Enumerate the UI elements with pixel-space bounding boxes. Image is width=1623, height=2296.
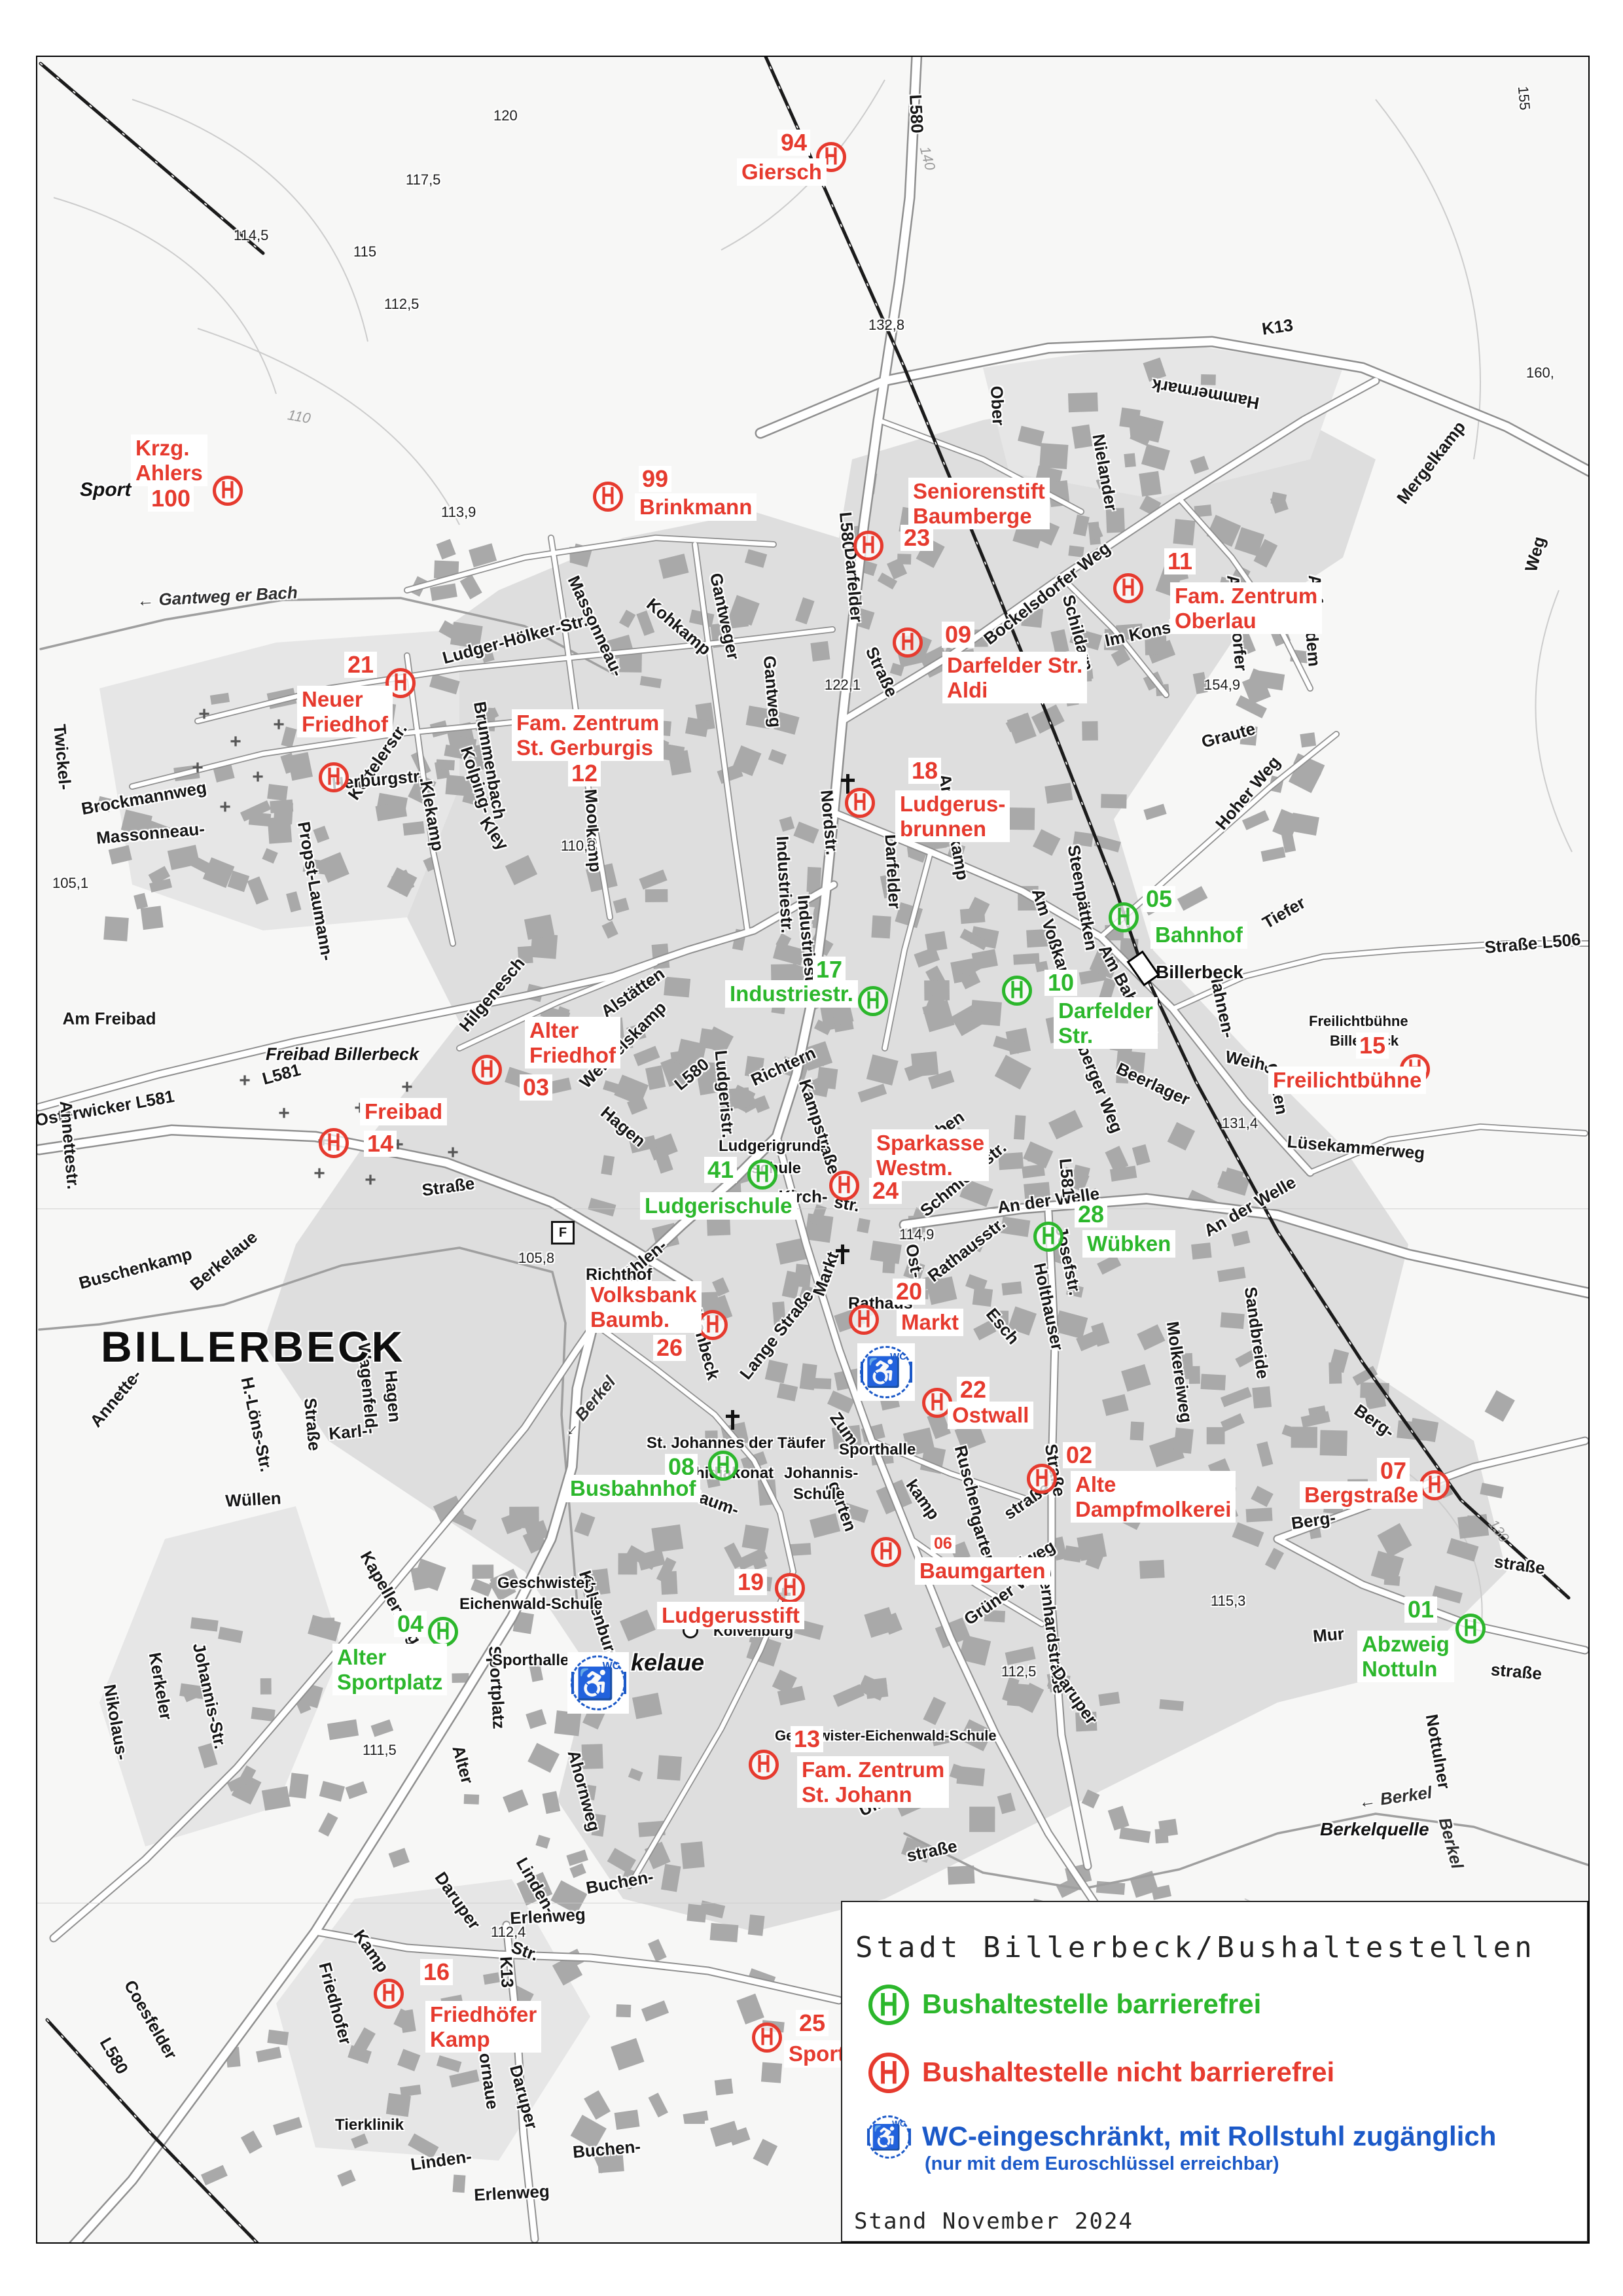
cemetery-cross-icon: + <box>273 714 285 736</box>
bus-stop-h-glyph: H <box>760 2025 774 2050</box>
wc-text: WC <box>603 1661 620 1672</box>
bus-stop-h-glyph: H <box>931 1390 944 1415</box>
bus-stop-label-06: Baumgarten <box>915 1557 1050 1585</box>
bus-stop-number-18: 18 <box>908 758 941 784</box>
bus-stop-marker-12: H <box>319 762 349 792</box>
cemetery-cross-icon: + <box>252 766 264 788</box>
cemetery-cross-icon: + <box>447 1142 459 1164</box>
wc-icon: ♿WC <box>567 1652 629 1714</box>
bus-stop-label-14: Freibad <box>360 1098 447 1125</box>
bus-stop-h-glyph: H <box>756 1162 770 1187</box>
legend-item-label: Bushaltestelle nicht barrierefrei <box>922 2057 1334 2088</box>
legend-title: Stadt Billerbeck/Bushaltestellen <box>855 1931 1536 1964</box>
bus-stop-label-100: Krzg. Ahlers <box>131 434 207 486</box>
elevation-label: 105,1 <box>52 875 88 892</box>
bus-stop-h-glyph: H <box>480 1057 494 1082</box>
legend-bus-stop-accessible-icon: H <box>868 1985 909 2025</box>
bus-stop-number-14: 14 <box>364 1131 397 1157</box>
elevation-label: 132,8 <box>868 317 904 334</box>
bus-stop-marker-100: H <box>213 476 243 506</box>
bus-stop-number-20: 20 <box>893 1279 925 1305</box>
place-label: Geschwister- <box>497 1574 596 1593</box>
bus-stop-number-41: 41 <box>704 1157 737 1183</box>
bus-stop-h-glyph: H <box>1042 1224 1056 1249</box>
bus-stop-marker-11: H <box>1113 573 1143 603</box>
cemetery-cross-icon: + <box>198 703 210 726</box>
place-label: Freilichtbühne <box>1309 1013 1408 1030</box>
place-label: Johannis- <box>784 1464 858 1483</box>
wc-bar <box>908 2128 911 2146</box>
bus-stop-h-glyph: H <box>437 1619 450 1644</box>
street-label: dem <box>1301 631 1325 667</box>
bus-stop-h-glyph: H <box>394 671 408 696</box>
wc-text: WC <box>892 2119 906 2128</box>
bus-stop-h-glyph: H <box>880 1540 893 1564</box>
bus-stop-marker-17: H <box>858 986 888 1016</box>
scan-artifact-line <box>37 1209 1588 1209</box>
place-label: St. Johannes der Täufer <box>647 1434 825 1453</box>
cemetery-cross-icon: + <box>219 796 231 819</box>
elevation-label: 120 <box>493 107 518 124</box>
bus-stop-number-94: 94 <box>777 130 810 156</box>
bus-stop-h-glyph: H <box>706 1313 720 1337</box>
wc-bar <box>624 1672 626 1694</box>
street-label: Wüllen <box>225 1488 282 1511</box>
legend-item-label: Bushaltestelle barrierefrei <box>922 1988 1261 2020</box>
bus-stop-label-13: Fam. Zentrum St. Johann <box>797 1756 949 1808</box>
wc-bar <box>867 2128 870 2146</box>
wc-text: WC <box>890 1351 906 1362</box>
bus-stop-marker-26: H <box>698 1310 728 1340</box>
elevation-label: 131,4 <box>1222 1115 1258 1132</box>
church-cross-icon <box>724 1410 741 1430</box>
wheelchair-icon: ♿ <box>865 1358 901 1387</box>
bus-stop-number-11: 11 <box>1164 548 1196 574</box>
place-label: Eichenwald-Schule <box>459 1595 603 1614</box>
page: { "city_label": "BILLERBECK", "colors": … <box>0 0 1623 2296</box>
bus-stop-marker-23: H <box>853 531 883 561</box>
bus-stop-label-03: Alter Friedhof <box>525 1017 620 1069</box>
bus-stop-h-glyph: H <box>783 1576 797 1600</box>
legend-item-accessible: H Bushaltestelle barrierefrei <box>842 1979 1587 2038</box>
bus-stop-number-100: 100 <box>148 486 194 512</box>
elevation-label: 111,5 <box>363 1742 397 1759</box>
bus-stop-marker-19: H <box>775 1573 805 1603</box>
bus-stop-number-15: 15 <box>1356 1033 1389 1059</box>
church-cross-icon <box>834 1245 851 1264</box>
bus-stop-marker-16: H <box>374 1979 404 2009</box>
bus-stop-label-17: Industriestr. <box>725 980 858 1008</box>
street-label: Ober <box>986 385 1008 426</box>
bus-stop-label-11: Fam. Zentrum Oberlau <box>1170 582 1322 634</box>
bus-stop-number-03: 03 <box>520 1074 552 1101</box>
bus-stop-label-26: Volksbank Baumb. <box>586 1281 702 1333</box>
bus-stop-number-25: 25 <box>796 2010 829 2036</box>
bus-stop-label-08: Busbahnhof <box>565 1475 700 1502</box>
parking-icon: F <box>551 1221 575 1245</box>
bus-stop-h-glyph: H <box>221 478 235 503</box>
bus-stop-number-09: 09 <box>942 622 974 648</box>
bus-stop-marker-06: H <box>871 1537 901 1567</box>
bus-stop-h-glyph: H <box>1010 978 1024 1003</box>
bus-stop-h-glyph: H <box>601 484 615 509</box>
elevation-label: 114,5 <box>234 227 268 244</box>
bus-stop-h-glyph: H <box>853 790 867 815</box>
bus-stop-marker-09: H <box>893 627 923 658</box>
bus-stop-label-18: Ludgerus- brunnen <box>895 790 1010 842</box>
place-label: Sporthalle <box>839 1441 916 1459</box>
place-label: Schule <box>793 1485 845 1504</box>
legend-item-sublabel: (nur mit dem Euroschlüssel erreichbar) <box>925 2153 1279 2175</box>
city-map: L580K13MergelkampWegHammermarkOberNielan… <box>36 56 1590 2244</box>
bus-stop-label-20: Markt <box>897 1309 963 1336</box>
bus-stop-marker-01: H <box>1455 1614 1486 1644</box>
cemetery-cross-icon: + <box>192 757 204 779</box>
bus-stop-label-94: Giersch <box>737 158 827 186</box>
bus-stop-number-16: 16 <box>420 1959 453 1985</box>
street-label: Darfelder <box>881 834 905 910</box>
bus-stop-marker-20: H <box>849 1305 879 1335</box>
bus-stop-marker-04: H <box>428 1617 458 1647</box>
bus-stop-marker-24: H <box>829 1171 859 1201</box>
bus-stop-number-01: 01 <box>1404 1597 1437 1623</box>
elevation-label: 155 <box>1514 86 1533 111</box>
elevation-label: 115 <box>353 243 376 260</box>
bus-stop-number-19: 19 <box>734 1569 767 1595</box>
street-label: Erlenweg <box>473 2181 550 2205</box>
bus-stop-marker-28: H <box>1033 1222 1063 1252</box>
street-label: Am Freibad <box>62 1009 156 1029</box>
cemetery-cross-icon: + <box>230 731 241 753</box>
place-label: Sporthalle <box>492 1651 569 1670</box>
elevation-label: 112,4 <box>491 1924 526 1941</box>
bus-stop-label-21: Neuer Friedhof <box>297 686 393 737</box>
bus-stop-label-15: Freilichtbühne <box>1268 1067 1426 1094</box>
bus-stop-number-21: 21 <box>344 652 377 678</box>
bus-stop-h-glyph: H <box>717 1453 730 1478</box>
place-label: Berkelquelle <box>1320 1819 1429 1840</box>
bus-stop-label-23: Seniorenstift Baumberge <box>908 478 1050 529</box>
bus-stop-label-07: Bergstraße <box>1300 1481 1423 1509</box>
wc-icon: ♿WC <box>857 1343 915 1401</box>
cemetery-cross-icon: + <box>401 1076 413 1099</box>
street-label: Mur <box>1312 1623 1345 1646</box>
bus-stop-marker-07: H <box>1419 1470 1450 1500</box>
city-name-label: BILLERBECK <box>101 1322 405 1371</box>
bus-stop-h-glyph: H <box>327 765 341 790</box>
place-label: Freibad Billerbeck <box>266 1044 419 1065</box>
bus-stop-number-13: 13 <box>791 1726 823 1752</box>
elevation-label: 117,5 <box>406 171 440 188</box>
bus-stop-label-16: Friedhöfer Kamp <box>425 2001 541 2053</box>
elevation-label: 110,3 <box>561 838 596 855</box>
bus-stop-marker-25: H <box>752 2022 782 2053</box>
bus-stop-h-glyph: H <box>757 1752 771 1777</box>
bus-stop-label-01: Abzweig Nottuln <box>1357 1631 1454 1682</box>
bus-stop-marker-13: H <box>749 1750 779 1780</box>
legend: Stadt Billerbeck/Bushaltestellen H Busha… <box>841 1901 1588 2242</box>
street-label: L580 <box>905 94 927 134</box>
elevation-label: 160, <box>1526 364 1554 381</box>
bus-stop-label-12: Fam. Zentrum St. Gerburgis <box>512 709 664 761</box>
bus-stop-marker-18: H <box>845 788 875 818</box>
bus-stop-marker-14: H <box>319 1128 349 1158</box>
bus-stop-number-99: 99 <box>639 466 671 492</box>
bus-stop-number-07: 07 <box>1377 1458 1410 1484</box>
legend-item-not-accessible: H Bushaltestelle nicht barrierefrei <box>842 2047 1587 2106</box>
bus-stop-number-28: 28 <box>1075 1201 1107 1227</box>
wc-bar <box>571 1672 574 1694</box>
bus-stop-h-glyph: H <box>866 989 880 1014</box>
bus-stop-marker-02: H <box>1027 1464 1057 1494</box>
bus-stop-number-26: 26 <box>653 1335 686 1361</box>
cemetery-cross-icon: + <box>278 1103 290 1125</box>
bus-stop-marker-99: H <box>593 482 623 512</box>
bus-stop-number-22: 22 <box>957 1377 990 1403</box>
bus-stop-number-10: 10 <box>1044 970 1077 996</box>
elevation-label: 112,5 <box>384 296 419 313</box>
bus-stop-label-02: Alte Dampfmolkerei <box>1071 1471 1236 1523</box>
bus-stop-h-glyph: H <box>901 630 915 655</box>
legend-bus-stop-not-accessible-icon: H <box>868 2053 909 2093</box>
bus-stop-label-10: Darfelder Str. <box>1054 997 1158 1049</box>
elevation-label: 114,9 <box>899 1226 934 1243</box>
wheelchair-icon: ♿ <box>576 1668 615 1699</box>
bus-stop-h-glyph: H <box>382 1981 396 2006</box>
bus-stop-number-17: 17 <box>813 957 846 983</box>
bus-stop-h-glyph: H <box>1035 1466 1049 1491</box>
bus-stop-h-glyph: H <box>838 1173 851 1198</box>
bus-stop-h-glyph: H <box>1464 1616 1478 1641</box>
bus-stop-label-99: Brinkmann <box>635 493 757 521</box>
wc-bar <box>861 1362 863 1383</box>
map-sheet: L580K13MergelkampWegHammermarkOberNielan… <box>36 56 1590 2244</box>
bus-stop-h-glyph: H <box>857 1307 871 1332</box>
street-label: K13 <box>495 1956 517 1988</box>
bus-stop-marker-41: H <box>747 1159 777 1190</box>
bus-stop-label-09: Darfelder Str. Aldi <box>942 652 1087 703</box>
bus-stop-marker-05: H <box>1109 902 1139 932</box>
elevation-label: 115,3 <box>1211 1593 1245 1610</box>
legend-wc-icon: ♿WC <box>865 2113 913 2161</box>
bus-stop-marker-10: H <box>1002 976 1032 1006</box>
bus-stop-h-glyph: H <box>1117 905 1131 930</box>
elevation-label: 113,9 <box>441 504 476 521</box>
cemetery-cross-icon: + <box>313 1163 325 1185</box>
bus-stop-h-glyph: H <box>327 1131 341 1156</box>
street-label: L581 <box>1055 1157 1079 1198</box>
elevation-label: 122,1 <box>825 677 861 694</box>
bus-stop-label-04: Alter Sportplatz <box>332 1644 447 1695</box>
bus-stop-label-28: Wübken <box>1082 1230 1175 1258</box>
wc-bar <box>910 1362 912 1383</box>
elevation-label: 154,9 <box>1204 677 1240 694</box>
bus-stop-label-19: Ludgerusstift <box>657 1602 804 1629</box>
place-label: Sport <box>80 479 131 501</box>
elevation-label: 112,5 <box>1001 1663 1036 1680</box>
bus-stop-label-41: Ludgerischule <box>640 1192 797 1220</box>
wheelchair-icon: ♿ <box>871 2125 901 2149</box>
place-label: Ludgerigrund- <box>719 1137 826 1156</box>
legend-date-stamp: Stand November 2024 <box>854 2208 1133 2234</box>
street-label: K13 <box>1260 315 1294 339</box>
bus-stop-label-24: Sparkasse Westm. <box>872 1129 989 1181</box>
bus-stop-marker-03: H <box>472 1055 502 1085</box>
bus-stop-number-24: 24 <box>869 1178 902 1204</box>
place-label: Tierklinik <box>335 2116 404 2134</box>
cemetery-cross-icon: + <box>239 1070 251 1092</box>
bus-stop-number-05: 05 <box>1143 886 1175 912</box>
bus-stop-number-06: 06 <box>931 1535 955 1553</box>
bus-stop-number-04: 04 <box>394 1611 427 1637</box>
scan-artifact-line <box>37 1903 841 1903</box>
legend-item-wc: ♿WC WC-eingeschränkt, mit Rollstuhl zugä… <box>842 2111 1587 2170</box>
place-label: kelaue <box>631 1649 704 1676</box>
bus-stop-number-02: 02 <box>1063 1442 1096 1468</box>
place-label: Billerbeck <box>1156 962 1243 983</box>
bus-stop-h-glyph: H <box>862 533 876 558</box>
bus-stop-label-22: Ostwall <box>948 1402 1033 1429</box>
bus-stop-h-glyph: H <box>1428 1473 1442 1498</box>
bus-stop-label-05: Bahnhof <box>1150 921 1247 949</box>
cemetery-cross-icon: + <box>365 1169 376 1192</box>
bus-stop-marker-08: H <box>708 1451 738 1481</box>
legend-item-label: WC-eingeschränkt, mit Rollstuhl zugängli… <box>922 2121 1496 2152</box>
elevation-label: 105,8 <box>518 1250 554 1267</box>
bus-stop-number-12: 12 <box>568 760 601 786</box>
bus-stop-h-glyph: H <box>1122 576 1135 601</box>
